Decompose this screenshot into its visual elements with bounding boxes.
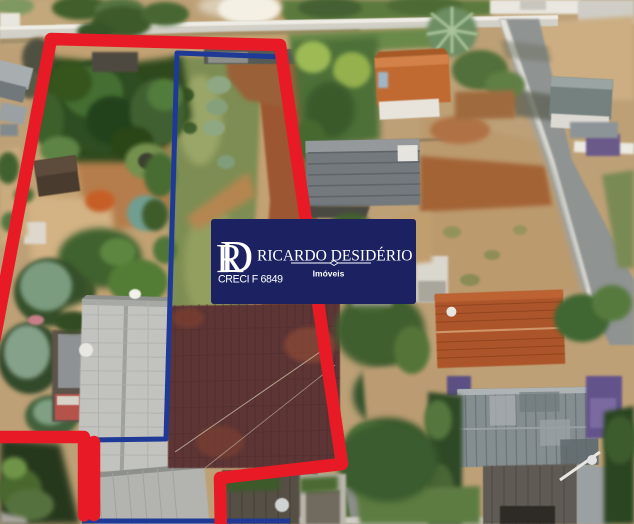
svg-text:Imóveis: Imóveis [313, 269, 345, 279]
svg-text:CRECI F 6849: CRECI F 6849 [218, 274, 283, 286]
